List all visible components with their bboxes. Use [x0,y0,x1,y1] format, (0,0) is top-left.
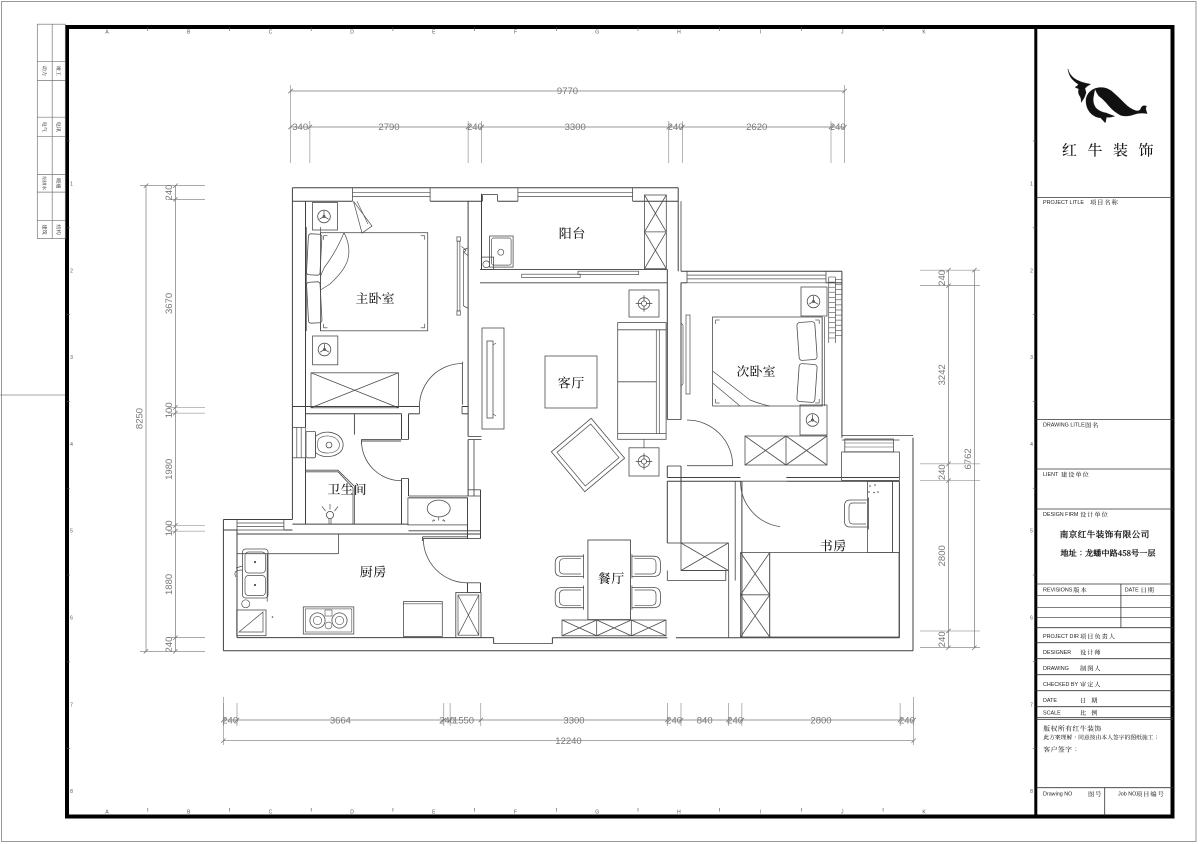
svg-text:7: 7 [1030,702,1033,708]
svg-text:DATE: DATE [1125,588,1139,594]
svg-text:H: H [677,810,681,816]
svg-text:1550: 1550 [453,716,474,727]
svg-text:3300: 3300 [565,122,586,133]
svg-text:9770: 9770 [557,86,578,97]
svg-text:240: 240 [899,716,915,727]
svg-text:I: I [760,810,761,816]
svg-text:DRAWING LITLE: DRAWING LITLE [1043,423,1085,429]
svg-text:840: 840 [697,716,713,727]
svg-text:DESIGNER: DESIGNER [1043,650,1071,656]
svg-text:5: 5 [70,529,73,535]
svg-text:1880: 1880 [164,574,175,595]
svg-text:PROJECT DIR: PROJECT DIR [1043,634,1079,640]
svg-text:3: 3 [70,355,73,361]
svg-text:1: 1 [70,182,73,188]
svg-text:G: G [595,810,599,816]
svg-text:REVISIONS: REVISIONS [1043,588,1073,594]
svg-text:2800: 2800 [937,545,948,566]
svg-text:DRAWING: DRAWING [1043,666,1069,672]
svg-text:2620: 2620 [746,122,767,133]
svg-text:PROJECT LITLE: PROJECT LITLE [1043,200,1084,206]
svg-text:DESIGN FIRM: DESIGN FIRM [1043,512,1079,518]
svg-text:3300: 3300 [563,716,584,727]
svg-text:3242: 3242 [937,364,948,385]
svg-text:8: 8 [70,789,73,795]
svg-text:100: 100 [164,402,175,418]
svg-text:I: I [760,30,761,36]
svg-text:240: 240 [937,631,948,647]
svg-text:240: 240 [937,270,948,286]
svg-text:5: 5 [1030,529,1033,535]
svg-text:240: 240 [467,122,483,133]
svg-text:F: F [514,810,517,816]
svg-text:6762: 6762 [963,448,974,469]
svg-text:240: 240 [666,716,682,727]
svg-text:240: 240 [937,464,948,480]
svg-text:240: 240 [668,122,684,133]
svg-text:3: 3 [1030,355,1033,361]
svg-text:Drawing NO: Drawing NO [1043,792,1072,798]
svg-text:C: C [269,810,273,816]
svg-text:Job NO: Job NO [1118,792,1136,798]
svg-text:1: 1 [1030,182,1033,188]
svg-text:6: 6 [70,616,73,622]
svg-text:8: 8 [1030,789,1033,795]
svg-text:3670: 3670 [164,293,175,314]
svg-text:240: 240 [222,716,238,727]
svg-text:8250: 8250 [135,408,146,429]
svg-text:4: 4 [70,442,73,448]
svg-text:CHECKED BY: CHECKED BY [1043,682,1078,688]
svg-text:F: F [514,30,517,36]
svg-text:3664: 3664 [330,716,351,727]
svg-text:340: 340 [292,122,308,133]
svg-text:2800: 2800 [810,716,831,727]
svg-text:H: H [677,30,681,36]
svg-text:4: 4 [1030,442,1033,448]
svg-text:2: 2 [70,268,73,274]
svg-text:D: D [350,810,354,816]
svg-text:D: D [350,30,354,36]
svg-text:100: 100 [164,520,175,536]
svg-text:2: 2 [1030,268,1033,274]
svg-text:LIENT: LIENT [1043,472,1059,478]
svg-text:6: 6 [1030,616,1033,622]
svg-text:DATE: DATE [1043,698,1057,704]
svg-text:C: C [269,30,273,36]
svg-text:240: 240 [164,185,175,201]
svg-text:240: 240 [830,122,846,133]
svg-text:G: G [595,30,599,36]
svg-text:240: 240 [164,637,175,653]
svg-text:SCALE: SCALE [1043,710,1061,716]
svg-text:7: 7 [70,702,73,708]
svg-text:240: 240 [727,716,743,727]
svg-text:1980: 1980 [164,459,175,480]
svg-text:12240: 12240 [555,736,581,747]
svg-text:2790: 2790 [378,122,399,133]
